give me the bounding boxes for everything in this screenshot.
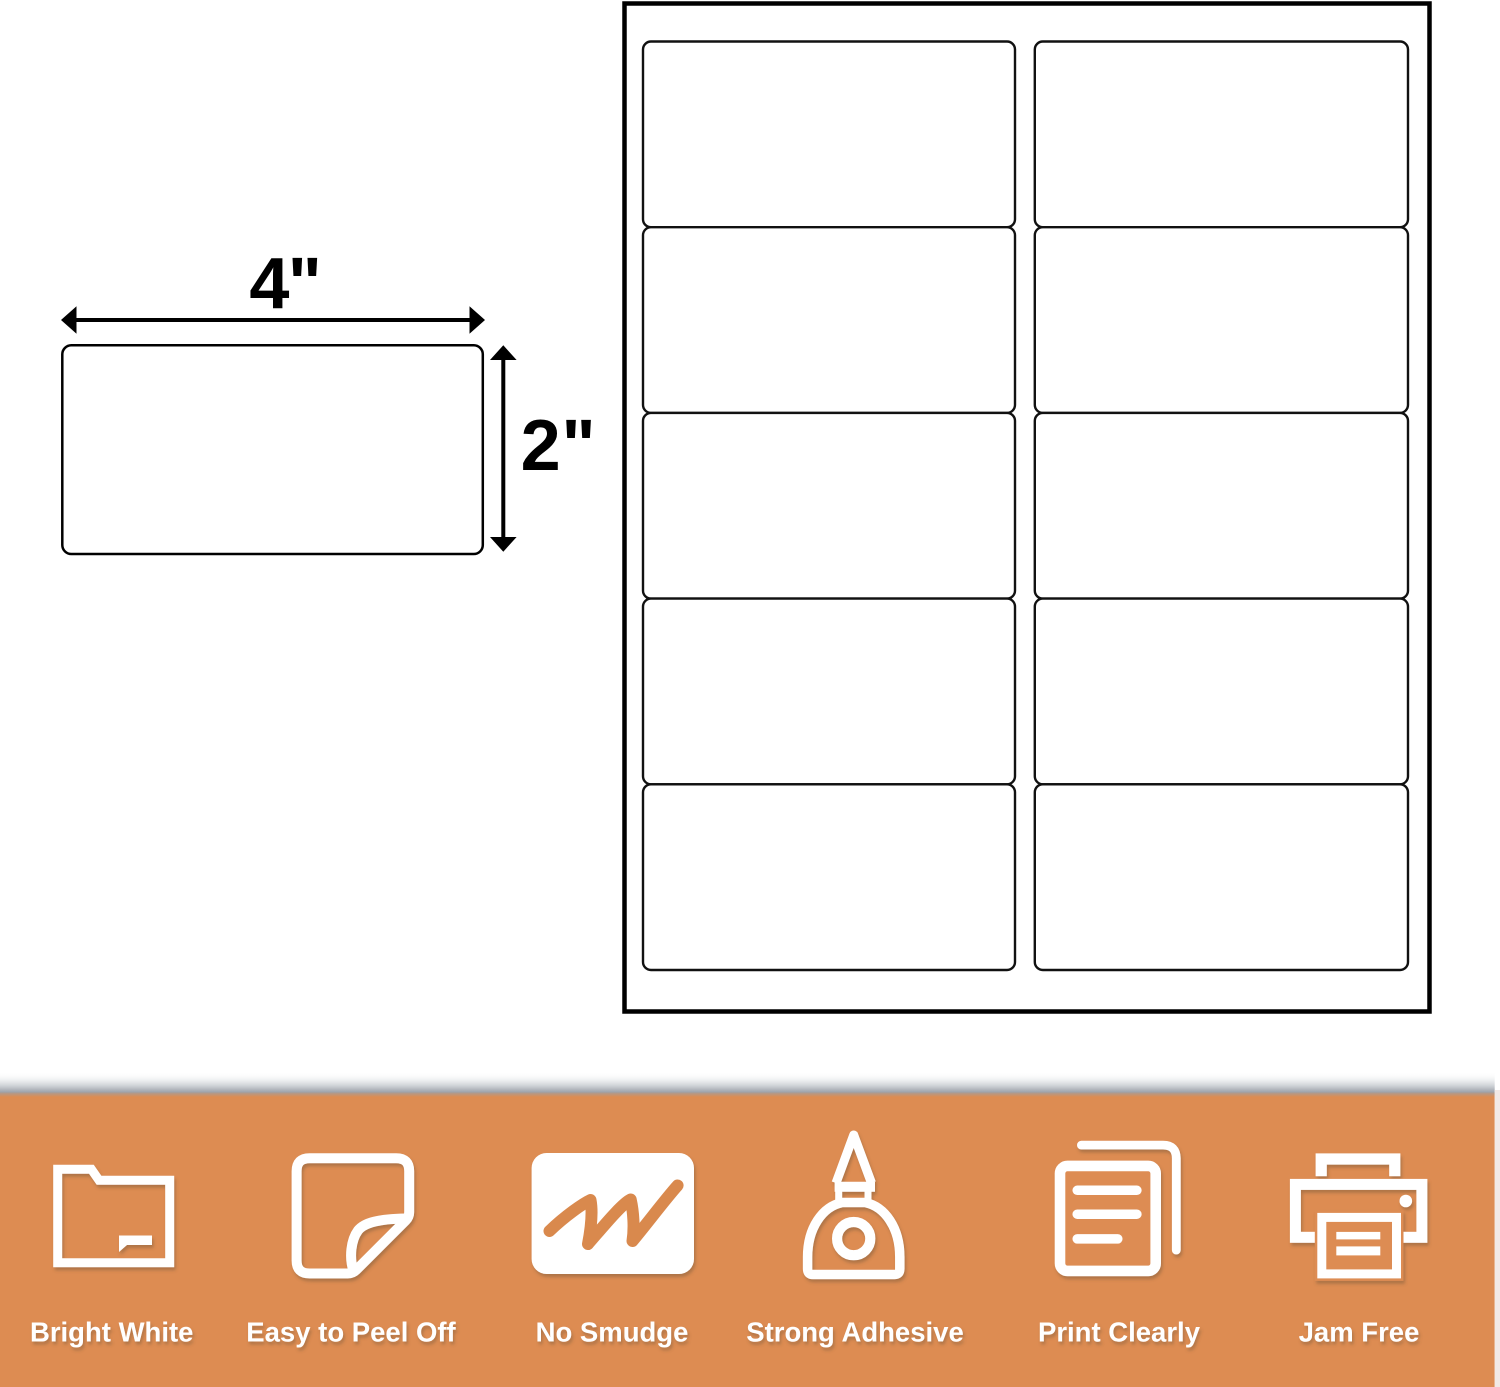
svg-text:Easy to Peel Off: Easy to Peel Off [246,1317,456,1348]
svg-text:Bright White: Bright White [30,1317,193,1348]
svg-text:No Smudge: No Smudge [536,1317,689,1348]
svg-text:Strong Adhesive: Strong Adhesive [746,1317,964,1348]
svg-text:Jam Free: Jam Free [1299,1317,1420,1348]
svg-text:Print Clearly: Print Clearly [1038,1317,1201,1348]
svg-text:": " [288,244,322,324]
svg-text:2: 2 [521,406,561,486]
svg-text:": " [562,406,596,486]
svg-text:4: 4 [249,244,289,324]
